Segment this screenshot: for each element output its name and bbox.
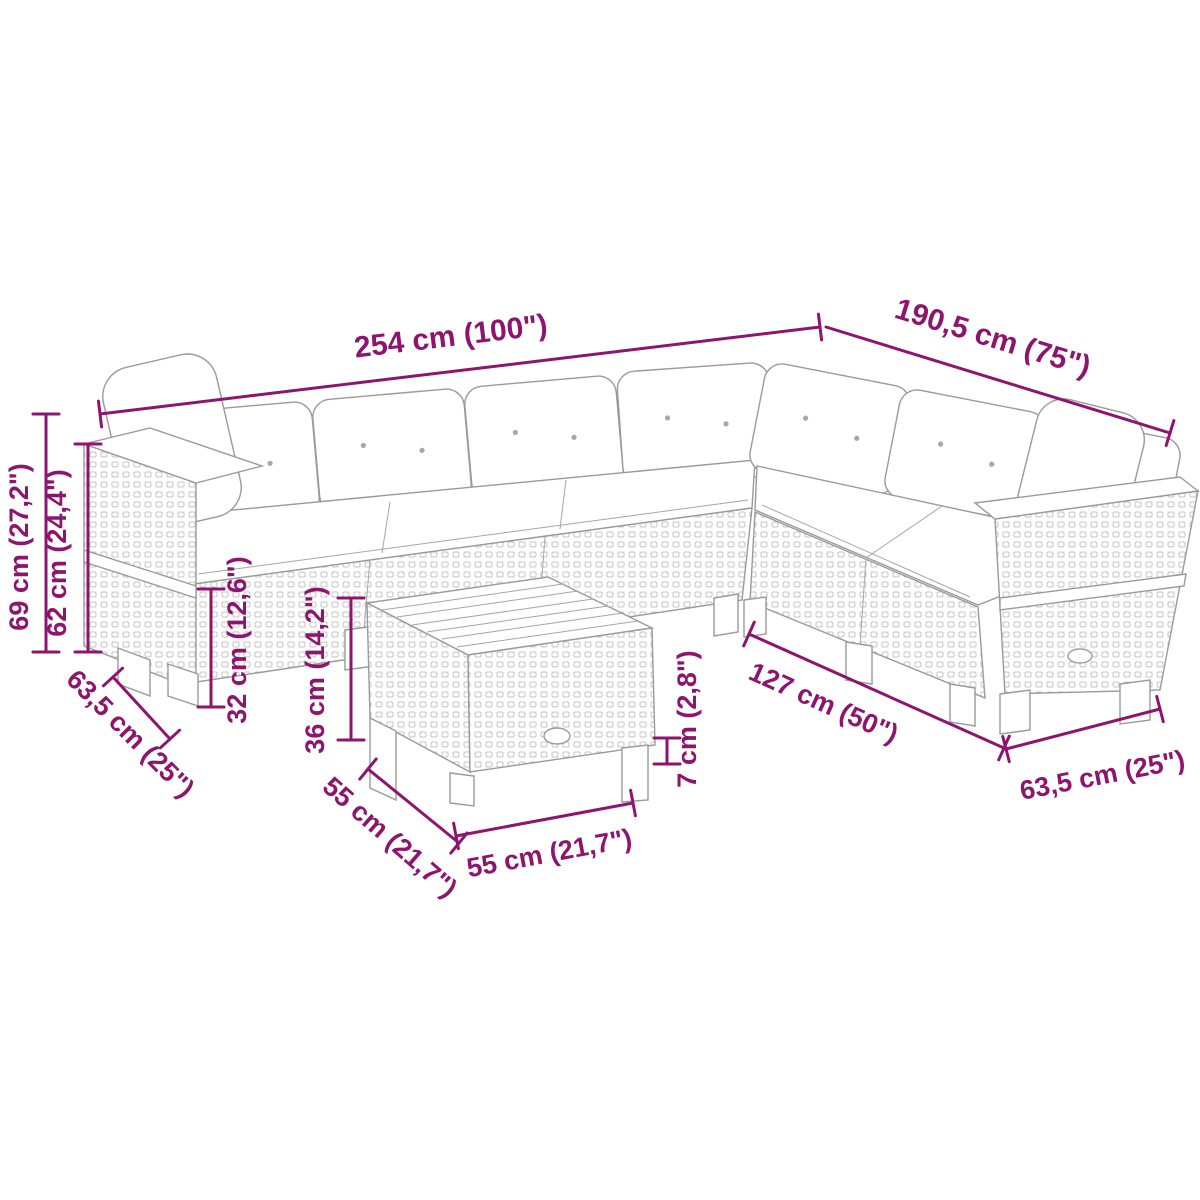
umbrella-hole xyxy=(1068,649,1092,663)
dim-label-cushion-thickness: 7 cm (2,8") xyxy=(672,650,702,787)
table-leg xyxy=(622,745,648,802)
umbrella-hole xyxy=(544,728,570,744)
sofa-leg xyxy=(1000,690,1030,734)
sofa-leg xyxy=(714,594,738,636)
sofa-leg xyxy=(950,684,975,726)
dim-label-total-height: 69 cm (27,2") xyxy=(4,463,34,630)
dim-label-seat-height: 32 cm (12,6") xyxy=(222,556,252,723)
sofa-leg xyxy=(744,597,766,637)
dim-label-table-width: 55 cm (21,7") xyxy=(464,823,634,883)
coffee-table xyxy=(367,577,655,806)
diagram-svg: 254 cm (100") 190,5 cm (75") 69 cm (27,2… xyxy=(0,0,1200,1200)
dim-label-overall-depth: 190,5 cm (75") xyxy=(891,292,1094,383)
dim-label-overall-width: 254 cm (100") xyxy=(352,309,549,365)
dim-label-module-depth-right: 63,5 cm (25") xyxy=(1017,744,1187,805)
table-leg xyxy=(450,773,474,806)
dim-label-table-height: 36 cm (14,2") xyxy=(300,586,330,753)
dim-label-right-section-length: 127 cm (50") xyxy=(745,656,903,749)
dimension-diagram: 254 cm (100") 190,5 cm (75") 69 cm (27,2… xyxy=(0,0,1200,1200)
dim-label-armrest-height: 62 cm (24,4") xyxy=(42,469,72,636)
